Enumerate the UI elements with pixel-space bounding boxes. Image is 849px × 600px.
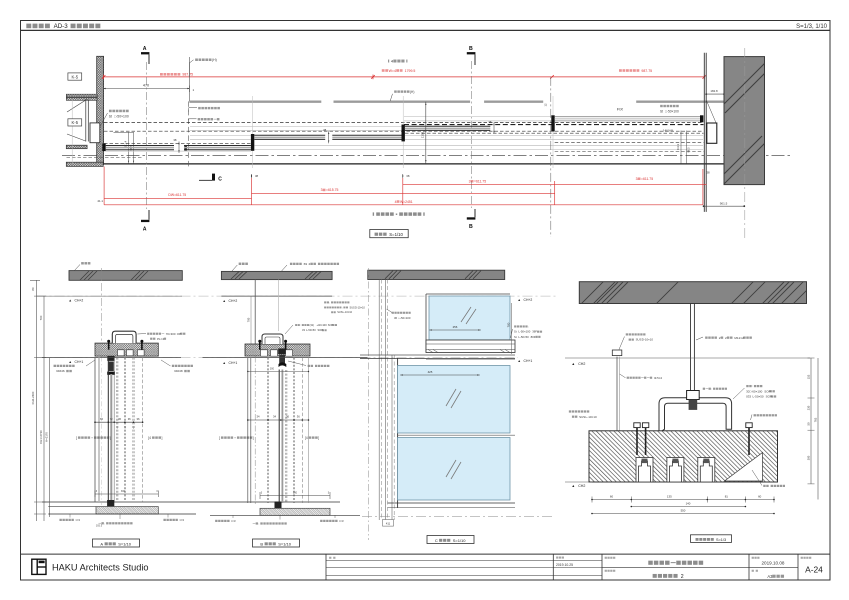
svg-text:41.1: 41.1 xyxy=(97,199,103,203)
svg-text:D-10×10: D-10×10 xyxy=(355,305,365,309)
svg-text:763: 763 xyxy=(813,417,817,422)
svg-text:425: 425 xyxy=(428,370,433,374)
svg-text:▲: ▲ xyxy=(69,299,72,303)
svg-text:4: 4 xyxy=(395,200,397,204)
svg-text:80F: 80F xyxy=(531,335,536,339)
svg-text:700: 700 xyxy=(246,317,250,322)
svg-text:36F: 36F xyxy=(532,330,537,334)
svg-text:□-50×100: □-50×100 xyxy=(114,115,129,119)
svg-text:=611.75: =611.75 xyxy=(474,180,486,184)
svg-text:A: A xyxy=(143,46,147,52)
svg-text:CH+2: CH+2 xyxy=(229,299,238,303)
svg-text:305.5: 305.5 xyxy=(96,525,103,528)
svg-text:M12×2: M12×2 xyxy=(734,336,744,340)
svg-text:70×300: 70×300 xyxy=(166,332,176,336)
svg-text:182.8: 182.8 xyxy=(710,89,718,93)
svg-text:96.5: 96.5 xyxy=(687,147,691,153)
svg-text:=611.75: =611.75 xyxy=(641,177,653,181)
svg-text:2: 2 xyxy=(308,262,310,266)
svg-text:700: 700 xyxy=(39,315,43,320)
svg-text:36: 36 xyxy=(118,417,121,421)
svg-text:300: 300 xyxy=(270,368,275,371)
svg-text:A: A xyxy=(143,227,147,233)
svg-text:66: 66 xyxy=(100,417,103,421)
svg-text:CH2-2400: CH2-2400 xyxy=(31,391,35,404)
svg-text:38: 38 xyxy=(255,174,259,178)
svg-text:t=3: t=3 xyxy=(231,519,236,523)
svg-text:B: B xyxy=(469,46,473,52)
svg-text:36: 36 xyxy=(137,417,140,421)
svg-text:60: 60 xyxy=(610,494,614,498)
svg-text:DW=611.75: DW=611.75 xyxy=(168,193,186,197)
svg-text:36: 36 xyxy=(394,316,398,320)
svg-text:901.5: 901.5 xyxy=(720,201,728,205)
svg-text:411: 411 xyxy=(386,522,391,526)
svg-text:[: [ xyxy=(76,436,77,440)
svg-text:2: 2 xyxy=(719,336,721,340)
svg-text:t=3: t=3 xyxy=(76,518,81,522)
svg-text:St: St xyxy=(109,115,112,119)
svg-text:]: ] xyxy=(110,436,111,440)
svg-text:+40×100: +40×100 xyxy=(316,323,327,327)
svg-text:CH+2: CH+2 xyxy=(75,299,84,303)
svg-text:140: 140 xyxy=(686,501,691,505)
svg-text:t=3: t=3 xyxy=(180,518,185,522)
svg-text:135: 135 xyxy=(667,494,672,498)
svg-text:12: 12 xyxy=(544,103,548,106)
svg-text:L-50×50: L-50×50 xyxy=(518,335,529,339)
svg-text:FIX: FIX xyxy=(617,107,624,112)
svg-text:St: St xyxy=(660,110,663,114)
svg-text:▲: ▲ xyxy=(223,299,226,303)
svg-text:38: 38 xyxy=(707,171,711,175)
svg-text:300: 300 xyxy=(806,455,810,460)
svg-text:□-50×100: □-50×100 xyxy=(398,316,410,320)
svg-text:▲: ▲ xyxy=(572,484,576,488)
svg-text:550: 550 xyxy=(681,508,686,512)
svg-text:A-24: A-24 xyxy=(805,565,823,575)
svg-text:L-50×50: L-50×50 xyxy=(752,395,763,399)
svg-text:CH+2: CH+2 xyxy=(524,298,533,302)
svg-text:W=2451: W=2451 xyxy=(400,200,413,204)
svg-text:▲: ▲ xyxy=(518,359,521,363)
svg-text:C: C xyxy=(435,538,438,543)
svg-text:S=1/3, 1/10: S=1/3, 1/10 xyxy=(796,24,828,30)
svg-text::: : xyxy=(752,384,753,388)
svg-text:▲: ▲ xyxy=(69,360,72,364)
svg-text:D-10×10: D-10×10 xyxy=(642,338,654,342)
svg-text:St: St xyxy=(514,330,517,334)
svg-text:CH2: CH2 xyxy=(578,484,585,488)
svg-text::: : xyxy=(104,521,105,525)
svg-text:2: 2 xyxy=(681,574,684,580)
svg-text:K-5: K-5 xyxy=(72,120,79,125)
svg-text:3-68 9-68: 3-68 9-68 xyxy=(663,130,674,133)
svg-text:C: C xyxy=(218,176,222,182)
svg-text:AD-3: AD-3 xyxy=(54,23,69,30)
svg-text:987.75: 987.75 xyxy=(182,73,193,77)
svg-text:34: 34 xyxy=(273,415,276,419)
svg-text:30□-60×100: 30□-60×100 xyxy=(746,389,763,393)
svg-text:S=1/10: S=1/10 xyxy=(389,232,403,237)
svg-text:[: [ xyxy=(219,436,220,440)
svg-text:36: 36 xyxy=(297,415,300,419)
svg-text:]: ] xyxy=(253,436,254,440)
svg-text:SUS: SUS xyxy=(636,338,642,342)
svg-text:CH2: CH2 xyxy=(578,362,585,366)
svg-text:300: 300 xyxy=(293,492,298,495)
svg-text:CH+1: CH+1 xyxy=(524,359,533,363)
svg-text:36: 36 xyxy=(128,417,131,421)
svg-text:=615.75: =615.75 xyxy=(326,188,338,192)
svg-text:3: 3 xyxy=(469,180,471,184)
svg-text:38: 38 xyxy=(488,120,492,124)
svg-text:B: B xyxy=(260,541,263,546)
svg-text:L-50×100: L-50×100 xyxy=(518,330,530,334)
svg-text:W=4: W=4 xyxy=(389,69,396,73)
svg-text:S=1/10: S=1/10 xyxy=(453,538,467,543)
svg-text:2019.10.08: 2019.10.08 xyxy=(762,561,785,566)
svg-text:]: ] xyxy=(318,436,319,440)
svg-text:L-10×10: L-10×10 xyxy=(343,310,353,314)
svg-text:230: 230 xyxy=(806,405,810,410)
svg-text:S=1/10: S=1/10 xyxy=(118,541,132,546)
svg-text:]: ] xyxy=(161,436,162,440)
svg-text:34646: 34646 xyxy=(56,369,65,373)
svg-text:987.75: 987.75 xyxy=(641,69,652,73)
svg-text:69: 69 xyxy=(304,262,308,266)
svg-text:1799.5: 1799.5 xyxy=(405,69,416,73)
svg-text:2019.10.25: 2019.10.25 xyxy=(556,563,573,567)
svg-text:3: 3 xyxy=(636,177,638,181)
svg-text:K-5: K-5 xyxy=(72,74,79,79)
svg-text:3: 3 xyxy=(321,188,323,192)
svg-text:033: 033 xyxy=(746,395,751,399)
svg-text:780: 780 xyxy=(507,322,511,327)
svg-text:SUS: SUS xyxy=(579,415,585,419)
svg-text:38: 38 xyxy=(406,174,410,178)
svg-text:72: 72 xyxy=(110,417,113,421)
svg-text:34048: 34048 xyxy=(174,369,183,373)
svg-text:[4: [4 xyxy=(305,436,308,440)
svg-text:300: 300 xyxy=(121,490,126,493)
svg-text:36: 36 xyxy=(286,415,289,419)
svg-text:t=3: t=3 xyxy=(339,519,344,523)
svg-text:50: 50 xyxy=(806,422,810,425)
svg-text:81: 81 xyxy=(725,494,729,498)
svg-text:□-50×100: □-50×100 xyxy=(665,110,679,114)
svg-text:60: 60 xyxy=(758,494,762,498)
svg-text:CH+1: CH+1 xyxy=(75,360,84,364)
svg-text:38: 38 xyxy=(323,128,327,132)
svg-text:L-10×10: L-10×10 xyxy=(586,415,597,419)
svg-text:470: 470 xyxy=(143,84,149,88)
svg-text:▲: ▲ xyxy=(518,298,521,302)
svg-text:CH+1: CH+1 xyxy=(229,361,238,365)
svg-text:(H): (H) xyxy=(410,90,414,94)
svg-text:34: 34 xyxy=(257,415,260,419)
svg-text:H=2176: H=2176 xyxy=(45,432,49,442)
svg-text:▲: ▲ xyxy=(572,362,576,366)
svg-text:CH1=2730: CH1=2730 xyxy=(39,430,43,444)
svg-text:A: A xyxy=(100,541,103,546)
svg-text:1100: 1100 xyxy=(420,131,424,138)
svg-text:t9.5×4: t9.5×4 xyxy=(654,376,663,380)
svg-text:(31): (31) xyxy=(309,323,314,327)
svg-text:2: 2 xyxy=(725,336,727,340)
svg-text:PL=4: PL=4 xyxy=(157,337,164,341)
svg-text:S=1/10: S=1/10 xyxy=(278,541,292,546)
svg-text:80: 80 xyxy=(31,287,35,291)
svg-text:256: 256 xyxy=(453,325,458,329)
svg-text:S=1/3: S=1/3 xyxy=(716,538,726,542)
svg-text:38: 38 xyxy=(173,138,177,142)
svg-text:153: 153 xyxy=(806,374,810,379)
svg-text:[4: [4 xyxy=(148,436,151,440)
svg-text:St: St xyxy=(514,335,517,339)
svg-text:▲: ▲ xyxy=(223,361,226,365)
svg-text:L-50×50: L-50×50 xyxy=(306,328,316,332)
svg-text:(H): (H) xyxy=(212,58,217,62)
svg-text:111.4: 111.4 xyxy=(124,140,128,147)
svg-text:111.3: 111.3 xyxy=(676,143,680,150)
svg-text:HAKU Architects Studio: HAKU Architects Studio xyxy=(52,563,149,573)
svg-text:B: B xyxy=(469,224,473,230)
